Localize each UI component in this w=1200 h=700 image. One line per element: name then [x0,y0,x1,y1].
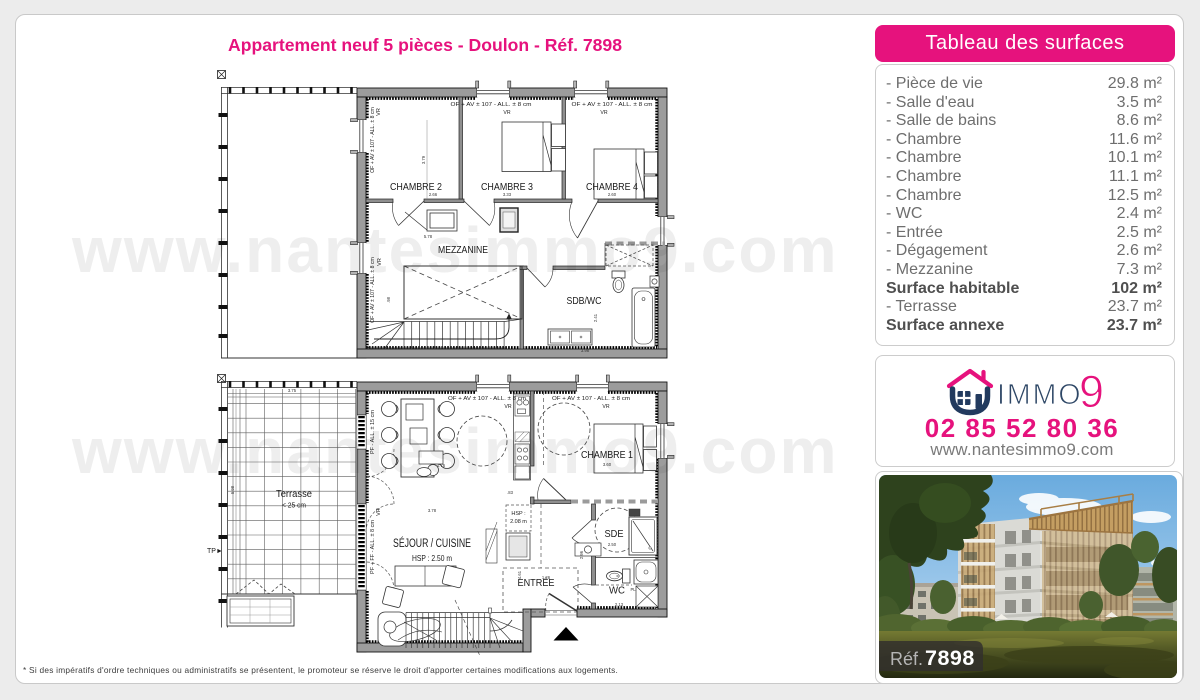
svg-text:1.26: 1.26 [542,575,551,580]
svg-text:2.41: 2.41 [593,313,598,322]
svg-text:SÉJOUR / CUISINE: SÉJOUR / CUISINE [393,537,471,550]
svg-text:SDB/WC: SDB/WC [567,295,602,307]
svg-text:4.61: 4.61 [517,570,522,579]
svg-text:3.78: 3.78 [428,508,437,513]
svg-text:HSP :: HSP : [511,511,526,517]
svg-text:2.08 m: 2.08 m [510,519,527,525]
svg-text:3.98: 3.98 [581,348,590,353]
svg-text:VR: VR [376,108,382,116]
svg-text:3.79: 3.79 [421,155,426,164]
svg-text:2.60: 2.60 [608,192,617,197]
svg-text:PL: PL [630,587,636,592]
svg-text:OF + AV ± 107 - ALL. ± 8 cm: OF + AV ± 107 - ALL. ± 8 cm [370,107,376,173]
svg-text:OF + AV ± 107 - ALL. ± 8 cm: OF + AV ± 107 - ALL. ± 8 cm [448,396,526,402]
svg-text:VR: VR [602,404,609,410]
svg-text:2.13: 2.13 [615,602,624,607]
svg-text:.83: .83 [507,490,513,495]
svg-text:SDE: SDE [605,528,624,540]
svg-text:OF + AV ± 107 - ALL. ± 8 cm: OF + AV ± 107 - ALL. ± 8 cm [552,396,630,402]
svg-text:< 25 cm: < 25 cm [282,503,306,510]
svg-text:VR: VR [376,508,382,516]
svg-text:3.75: 3.75 [288,388,297,393]
svg-text:.98: .98 [386,296,391,302]
svg-text:VR: VR [600,110,607,116]
svg-text:IMMO: IMMO [997,379,1083,411]
svg-text:PF + FF - ALL. ± 8 cm: PF + FF - ALL. ± 8 cm [370,520,376,574]
svg-text:WC: WC [609,585,625,597]
svg-text:2.96: 2.96 [579,550,584,559]
svg-text:VR: VR [504,404,511,410]
svg-text:Terrasse: Terrasse [276,488,312,500]
svg-text:9: 9 [1079,366,1104,417]
svg-text:3.33: 3.33 [503,192,512,197]
svg-text:TP►: TP► [207,548,223,555]
svg-text:HSP : 2.50 m: HSP : 2.50 m [412,554,452,563]
svg-text:Réf.: Réf. [890,649,923,669]
svg-text:7898: 7898 [925,646,975,670]
svg-text:2.66: 2.66 [429,192,438,197]
svg-text:OF + AV ± 107 - ALL. ± 8 cm: OF + AV ± 107 - ALL. ± 8 cm [572,102,653,108]
svg-text:2.50: 2.50 [608,542,617,547]
svg-text:VR: VR [503,110,510,116]
svg-text:OF + AV ± 107 - ALL. ± 8 cm: OF + AV ± 107 - ALL. ± 8 cm [451,102,532,108]
